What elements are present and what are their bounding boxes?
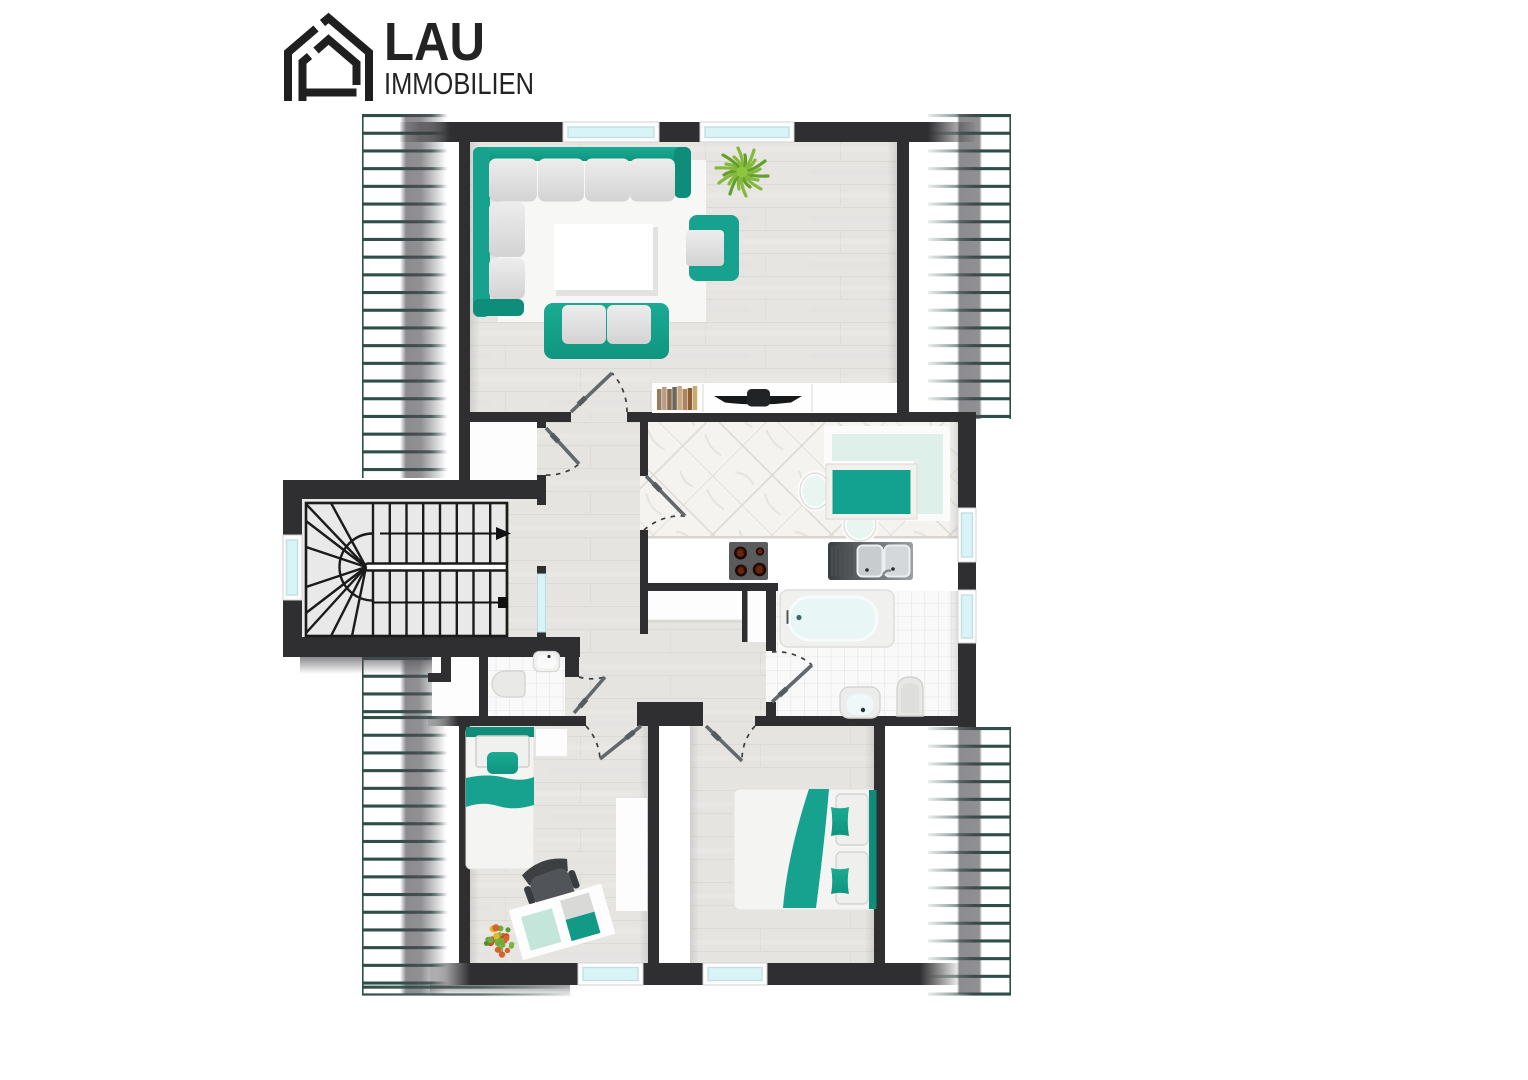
svg-text:IMMOBILIEN: IMMOBILIEN xyxy=(384,67,534,101)
svg-text:LAU: LAU xyxy=(384,12,485,72)
